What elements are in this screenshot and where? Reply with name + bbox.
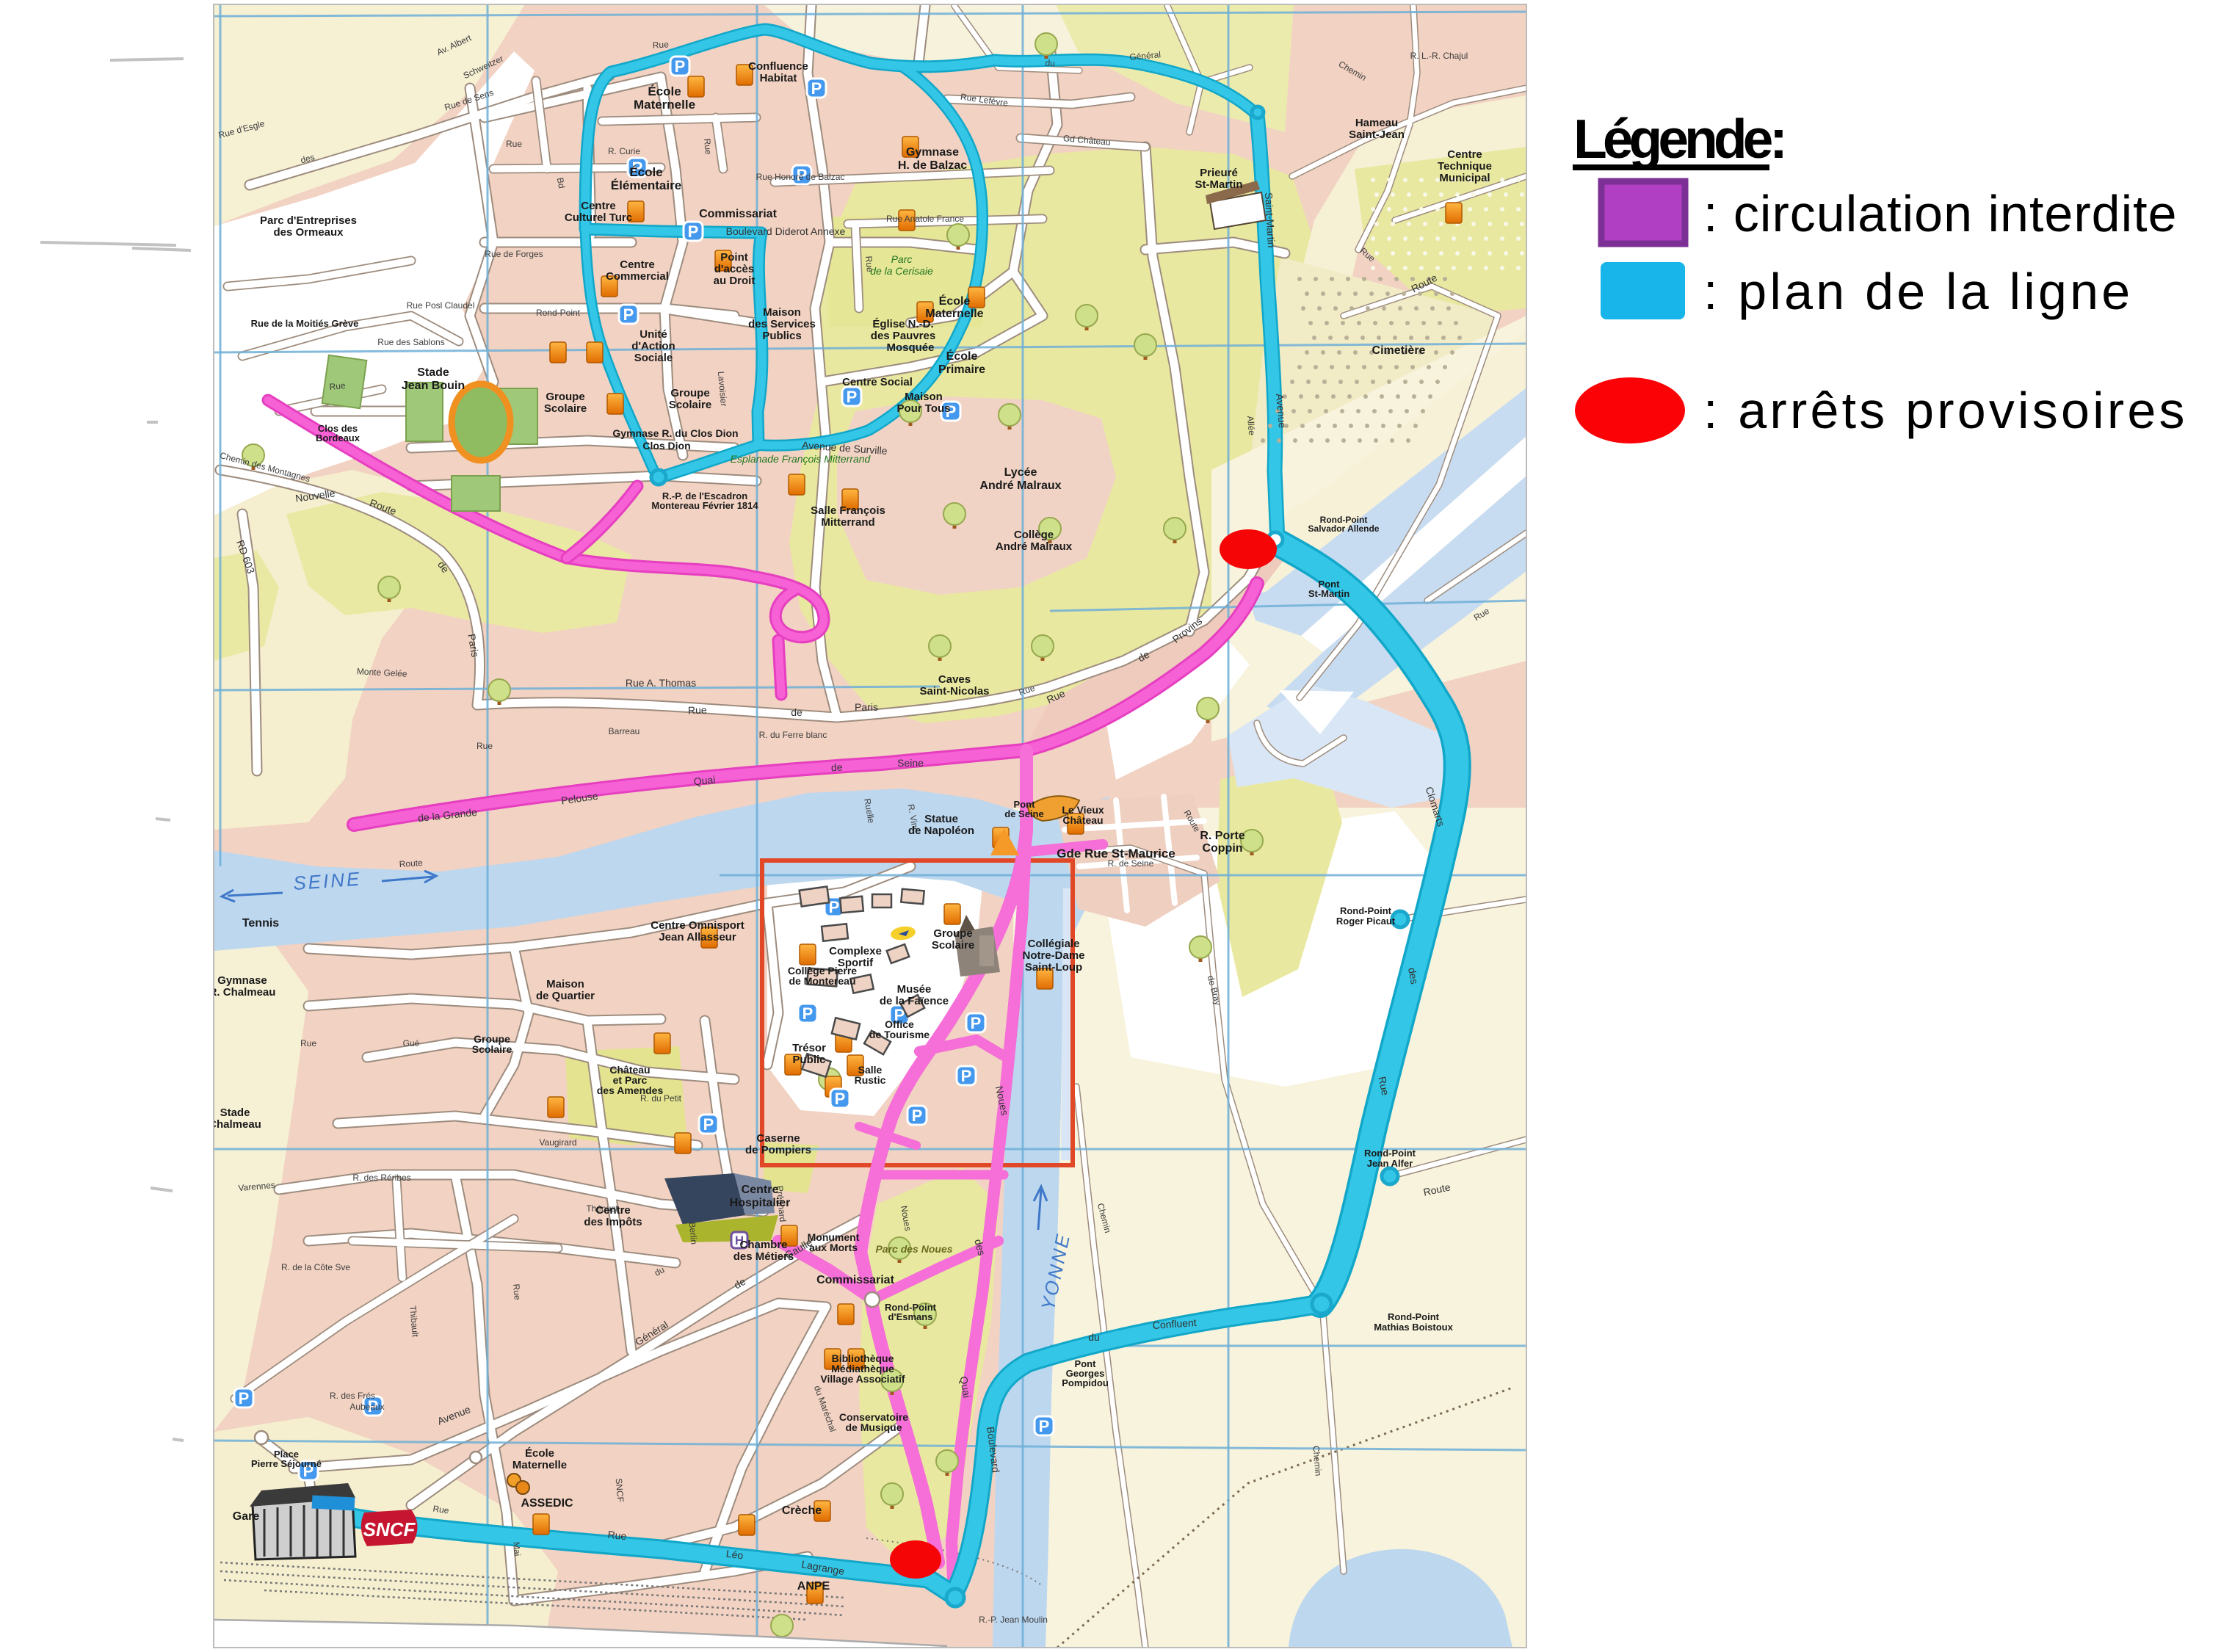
svg-text:Parc des Noues: Parc des Noues bbox=[875, 1243, 952, 1255]
svg-text:Rond-Point: Rond-Point bbox=[536, 308, 581, 318]
svg-text:Chambre: Chambre bbox=[739, 1239, 787, 1251]
svg-text:Gué: Gué bbox=[403, 1038, 420, 1048]
svg-text:de: de bbox=[830, 761, 843, 773]
svg-text:: circulation interdite: : circulation interdite bbox=[1703, 185, 2178, 242]
svg-text:Scolaire: Scolaire bbox=[669, 399, 711, 411]
svg-text:Collégiale: Collégiale bbox=[1028, 938, 1080, 950]
svg-text:Maison: Maison bbox=[905, 391, 943, 403]
svg-text:Rue Anatole France: Rue Anatole France bbox=[886, 214, 964, 224]
svg-text:de la Faïence: de la Faïence bbox=[880, 995, 949, 1007]
svg-text:R. des Frés: R. des Frés bbox=[330, 1391, 375, 1401]
svg-text:ASSEDIC: ASSEDIC bbox=[521, 1497, 573, 1510]
svg-text:Maternelle: Maternelle bbox=[634, 98, 695, 112]
svg-text:Centre Social: Centre Social bbox=[842, 376, 913, 388]
svg-text:Stade: Stade bbox=[417, 366, 449, 379]
svg-text:Rond-Point: Rond-Point bbox=[1388, 1311, 1440, 1322]
svg-text:Rue: Rue bbox=[702, 138, 714, 155]
svg-text:École: École bbox=[648, 84, 681, 98]
svg-text:: plan de la ligne: : plan de la ligne bbox=[1703, 263, 2133, 320]
svg-text::: : bbox=[1769, 108, 1788, 170]
svg-text:de Montereau: de Montereau bbox=[789, 975, 855, 987]
svg-text:Seine: Seine bbox=[897, 757, 924, 769]
svg-text:R. L.-R. Chajul: R. L.-R. Chajul bbox=[1410, 51, 1468, 61]
svg-text:Caserne: Caserne bbox=[756, 1132, 800, 1145]
svg-text:Gymnase: Gymnase bbox=[217, 974, 267, 987]
svg-text:: arrêts provisoires: : arrêts provisoires bbox=[1703, 382, 2188, 439]
svg-text:Bd: Bd bbox=[555, 177, 567, 189]
svg-text:Hospitalier: Hospitalier bbox=[730, 1197, 791, 1209]
svg-text:André Malraux: André Malraux bbox=[996, 540, 1073, 553]
svg-text:d'Esmans: d'Esmans bbox=[888, 1311, 933, 1322]
svg-text:Village Associatif: Village Associatif bbox=[820, 1373, 905, 1385]
svg-text:Salvador Allende: Salvador Allende bbox=[1308, 524, 1380, 534]
svg-text:Scolaire: Scolaire bbox=[472, 1043, 512, 1055]
svg-text:R. Porte: R. Porte bbox=[1200, 830, 1244, 842]
svg-text:Point: Point bbox=[720, 251, 748, 264]
svg-text:Pompidou: Pompidou bbox=[1062, 1377, 1109, 1388]
svg-text:Rue: Rue bbox=[607, 1529, 627, 1543]
svg-text:Technique: Technique bbox=[1438, 160, 1492, 173]
svg-text:Gde Rue St-Maurice: Gde Rue St-Maurice bbox=[1057, 847, 1175, 861]
svg-text:du: du bbox=[1088, 1331, 1100, 1343]
svg-text:École: École bbox=[629, 165, 662, 179]
svg-text:des Impôts: des Impôts bbox=[584, 1216, 642, 1228]
svg-text:des Ormeaux: des Ormeaux bbox=[273, 226, 344, 239]
svg-text:Mosquée: Mosquée bbox=[886, 341, 934, 354]
svg-text:Notre-Dame: Notre-Dame bbox=[1022, 949, 1084, 962]
svg-text:Publics: Publics bbox=[762, 330, 801, 342]
svg-text:Château: Château bbox=[1062, 814, 1103, 826]
svg-text:Rue A. Thomas: Rue A. Thomas bbox=[626, 677, 696, 689]
svg-text:Prieuré: Prieuré bbox=[1200, 167, 1238, 179]
svg-text:R. du Ferre blanc: R. du Ferre blanc bbox=[759, 730, 827, 740]
svg-text:Parc d'Entreprises: Parc d'Entreprises bbox=[260, 214, 357, 227]
svg-text:ANPE: ANPE bbox=[797, 1580, 830, 1593]
svg-text:Parc: Parc bbox=[891, 253, 913, 265]
svg-text:R.-P. Jean Moulin: R.-P. Jean Moulin bbox=[979, 1615, 1048, 1625]
svg-text:Coppin: Coppin bbox=[1202, 842, 1242, 855]
svg-text:Gymnase: Gymnase bbox=[906, 146, 959, 159]
svg-text:Centre: Centre bbox=[581, 200, 616, 212]
svg-text:Centre: Centre bbox=[1447, 148, 1482, 161]
svg-text:Esplanade François Mitterrand: Esplanade François Mitterrand bbox=[731, 453, 872, 465]
svg-text:Primaire: Primaire bbox=[938, 363, 985, 376]
svg-text:Sociale: Sociale bbox=[634, 352, 673, 364]
svg-text:Barreau: Barreau bbox=[609, 726, 640, 736]
svg-text:Caves: Caves bbox=[938, 673, 971, 686]
svg-text:Rue: Rue bbox=[329, 380, 347, 392]
svg-text:Rue: Rue bbox=[652, 39, 669, 50]
svg-text:SNCF: SNCF bbox=[363, 1518, 416, 1540]
svg-text:de: de bbox=[791, 706, 802, 718]
svg-text:École: École bbox=[525, 1447, 554, 1460]
svg-text:de Seine: de Seine bbox=[1004, 808, 1043, 819]
svg-text:de Quartier: de Quartier bbox=[536, 990, 595, 1002]
svg-text:Gymnase R. du Clos Dion: Gymnase R. du Clos Dion bbox=[612, 427, 738, 439]
svg-text:Centre: Centre bbox=[595, 1204, 631, 1217]
svg-text:Jean Alfer: Jean Alfer bbox=[1367, 1158, 1413, 1169]
svg-text:Unité: Unité bbox=[640, 328, 667, 341]
svg-text:R. de la Côte Sve: R. de la Côte Sve bbox=[281, 1262, 350, 1272]
svg-text:Collège: Collège bbox=[1014, 529, 1054, 541]
svg-text:Tennis: Tennis bbox=[242, 917, 279, 930]
svg-text:Statue: Statue bbox=[924, 813, 958, 825]
svg-text:École: École bbox=[946, 349, 978, 363]
svg-text:Pierre Séjourné: Pierre Séjourné bbox=[251, 1458, 322, 1469]
svg-text:Centre: Centre bbox=[620, 258, 655, 271]
svg-text:Aubeaux: Aubeaux bbox=[349, 1402, 384, 1412]
svg-text:de la Cerisaie: de la Cerisaie bbox=[870, 265, 933, 277]
svg-text:Rue des Sablons: Rue des Sablons bbox=[377, 337, 444, 347]
svg-text:Maison: Maison bbox=[546, 978, 584, 990]
svg-text:Hameau: Hameau bbox=[1355, 117, 1398, 129]
svg-text:Gare: Gare bbox=[233, 1510, 260, 1523]
svg-text:Saint-Nicolas: Saint-Nicolas bbox=[919, 685, 989, 698]
svg-text:Montereau Février 1814: Montereau Février 1814 bbox=[651, 500, 758, 511]
svg-text:aux Morts: aux Morts bbox=[809, 1242, 858, 1253]
svg-text:Groupe: Groupe bbox=[546, 391, 584, 403]
svg-text:des Pauvres: des Pauvres bbox=[871, 330, 935, 342]
svg-text:R. Curie: R. Curie bbox=[608, 146, 640, 156]
svg-text:Salle François: Salle François bbox=[811, 504, 885, 517]
svg-text:Crèche: Crèche bbox=[782, 1504, 822, 1517]
svg-text:Chalmeau: Chalmeau bbox=[209, 1118, 261, 1131]
svg-text:Rue de Forges: Rue de Forges bbox=[485, 249, 543, 259]
svg-text:Mathias Boistoux: Mathias Boistoux bbox=[1374, 1322, 1453, 1333]
svg-text:Rue: Rue bbox=[506, 139, 522, 149]
svg-text:H. de Balzac: H. de Balzac bbox=[898, 159, 967, 172]
svg-text:R. Chalmeau: R. Chalmeau bbox=[209, 986, 276, 999]
svg-text:Musée: Musée bbox=[897, 983, 932, 996]
svg-text:Mai: Mai bbox=[511, 1541, 523, 1556]
svg-text:St-Martin: St-Martin bbox=[1308, 588, 1349, 599]
svg-text:Rue Honoré de Balzac: Rue Honoré de Balzac bbox=[756, 172, 845, 182]
svg-text:R. des Réribes: R. des Réribes bbox=[352, 1173, 410, 1183]
svg-text:Maternelle: Maternelle bbox=[925, 308, 983, 320]
svg-text:Scolaire: Scolaire bbox=[544, 402, 587, 415]
svg-text:Centre Omnisport: Centre Omnisport bbox=[651, 919, 744, 932]
svg-text:Municipal: Municipal bbox=[1439, 172, 1490, 184]
svg-text:Lycée: Lycée bbox=[1004, 466, 1037, 479]
svg-text:Paris: Paris bbox=[855, 701, 878, 713]
svg-text:Rue de la Moitiés Grève: Rue de la Moitiés Grève bbox=[251, 318, 359, 329]
svg-text:Rue: Rue bbox=[477, 741, 493, 751]
svg-text:Cimetière: Cimetière bbox=[1372, 344, 1426, 357]
svg-text:Vaugirard: Vaugirard bbox=[539, 1137, 576, 1148]
svg-text:Rond-Point: Rond-Point bbox=[1340, 905, 1392, 916]
svg-text:Commissariat: Commissariat bbox=[699, 208, 777, 220]
svg-text:Rue Posl Claudel: Rue Posl Claudel bbox=[407, 300, 475, 311]
svg-text:Quai: Quai bbox=[693, 774, 716, 788]
svg-text:Boulevard Diderot Annexe: Boulevard Diderot Annexe bbox=[726, 225, 846, 237]
svg-text:d'accès: d'accès bbox=[714, 263, 754, 275]
svg-text:Centre: Centre bbox=[742, 1184, 779, 1196]
svg-text:Route: Route bbox=[399, 858, 423, 869]
svg-text:Rue: Rue bbox=[688, 704, 707, 717]
svg-text:P: P bbox=[0, 0, 5, 10]
svg-text:St-Martin: St-Martin bbox=[1195, 178, 1243, 191]
svg-text:de Tourisme: de Tourisme bbox=[869, 1029, 930, 1040]
svg-text:Saint-Jean: Saint-Jean bbox=[1349, 128, 1405, 141]
svg-text:du: du bbox=[1045, 58, 1055, 69]
svg-text:Jean Allasseur: Jean Allasseur bbox=[659, 931, 736, 943]
svg-text:Mitterrand: Mitterrand bbox=[821, 516, 874, 529]
svg-text:Rue: Rue bbox=[300, 1038, 316, 1048]
svg-text:Jean Bouin: Jean Bouin bbox=[402, 380, 465, 392]
svg-text:au Droit: au Droit bbox=[714, 275, 756, 287]
svg-text:Élémentaire: Élémentaire bbox=[611, 178, 681, 192]
svg-text:Groupe: Groupe bbox=[933, 927, 972, 940]
svg-text:Maison: Maison bbox=[763, 306, 801, 319]
svg-text:de Musique: de Musique bbox=[845, 1421, 902, 1433]
svg-text:Roger Picaut: Roger Picaut bbox=[1336, 916, 1396, 927]
svg-text:Église N.-D.: Église N.-D. bbox=[872, 318, 933, 330]
svg-text:Pour Tous: Pour Tous bbox=[896, 402, 950, 415]
svg-text:de Napoléon: de Napoléon bbox=[908, 825, 974, 837]
svg-text:Saint-Loup: Saint-Loup bbox=[1025, 961, 1082, 974]
svg-text:École: École bbox=[939, 294, 971, 308]
svg-text:Stade: Stade bbox=[220, 1106, 250, 1119]
svg-text:Clos Dion: Clos Dion bbox=[642, 440, 690, 452]
svg-text:Léo: Léo bbox=[725, 1548, 744, 1562]
svg-text:Scolaire: Scolaire bbox=[932, 939, 974, 952]
svg-text:Trésor: Trésor bbox=[792, 1042, 826, 1054]
svg-text:Rustic: Rustic bbox=[855, 1074, 886, 1086]
svg-text:des Amendes: des Amendes bbox=[597, 1084, 664, 1096]
svg-text:Légende: Légende bbox=[1573, 108, 1772, 170]
svg-text:Habitat: Habitat bbox=[760, 72, 797, 84]
svg-text:Rond-Point: Rond-Point bbox=[1364, 1148, 1416, 1159]
svg-text:Groupe: Groupe bbox=[670, 387, 709, 399]
svg-text:des Services: des Services bbox=[748, 318, 816, 330]
svg-text:André Malraux: André Malraux bbox=[979, 479, 1061, 492]
svg-text:Maternelle: Maternelle bbox=[512, 1459, 567, 1471]
svg-text:Allée: Allée bbox=[1245, 416, 1257, 436]
svg-text:Public: Public bbox=[792, 1054, 825, 1066]
svg-text:Culturel Turc: Culturel Turc bbox=[565, 211, 632, 224]
svg-text:SNCF: SNCF bbox=[614, 1478, 626, 1503]
svg-text:Rue: Rue bbox=[511, 1283, 523, 1300]
svg-text:Commercial: Commercial bbox=[606, 270, 669, 283]
svg-text:Complexe: Complexe bbox=[829, 945, 882, 957]
svg-text:Commissariat: Commissariat bbox=[816, 1274, 894, 1286]
svg-text:Confluence: Confluence bbox=[748, 60, 808, 73]
svg-text:Berlin: Berlin bbox=[687, 1222, 700, 1245]
svg-text:de Pompiers: de Pompiers bbox=[745, 1144, 811, 1156]
svg-text:d'Action: d'Action bbox=[631, 340, 675, 352]
svg-text:Bordeaux: Bordeaux bbox=[316, 432, 360, 443]
